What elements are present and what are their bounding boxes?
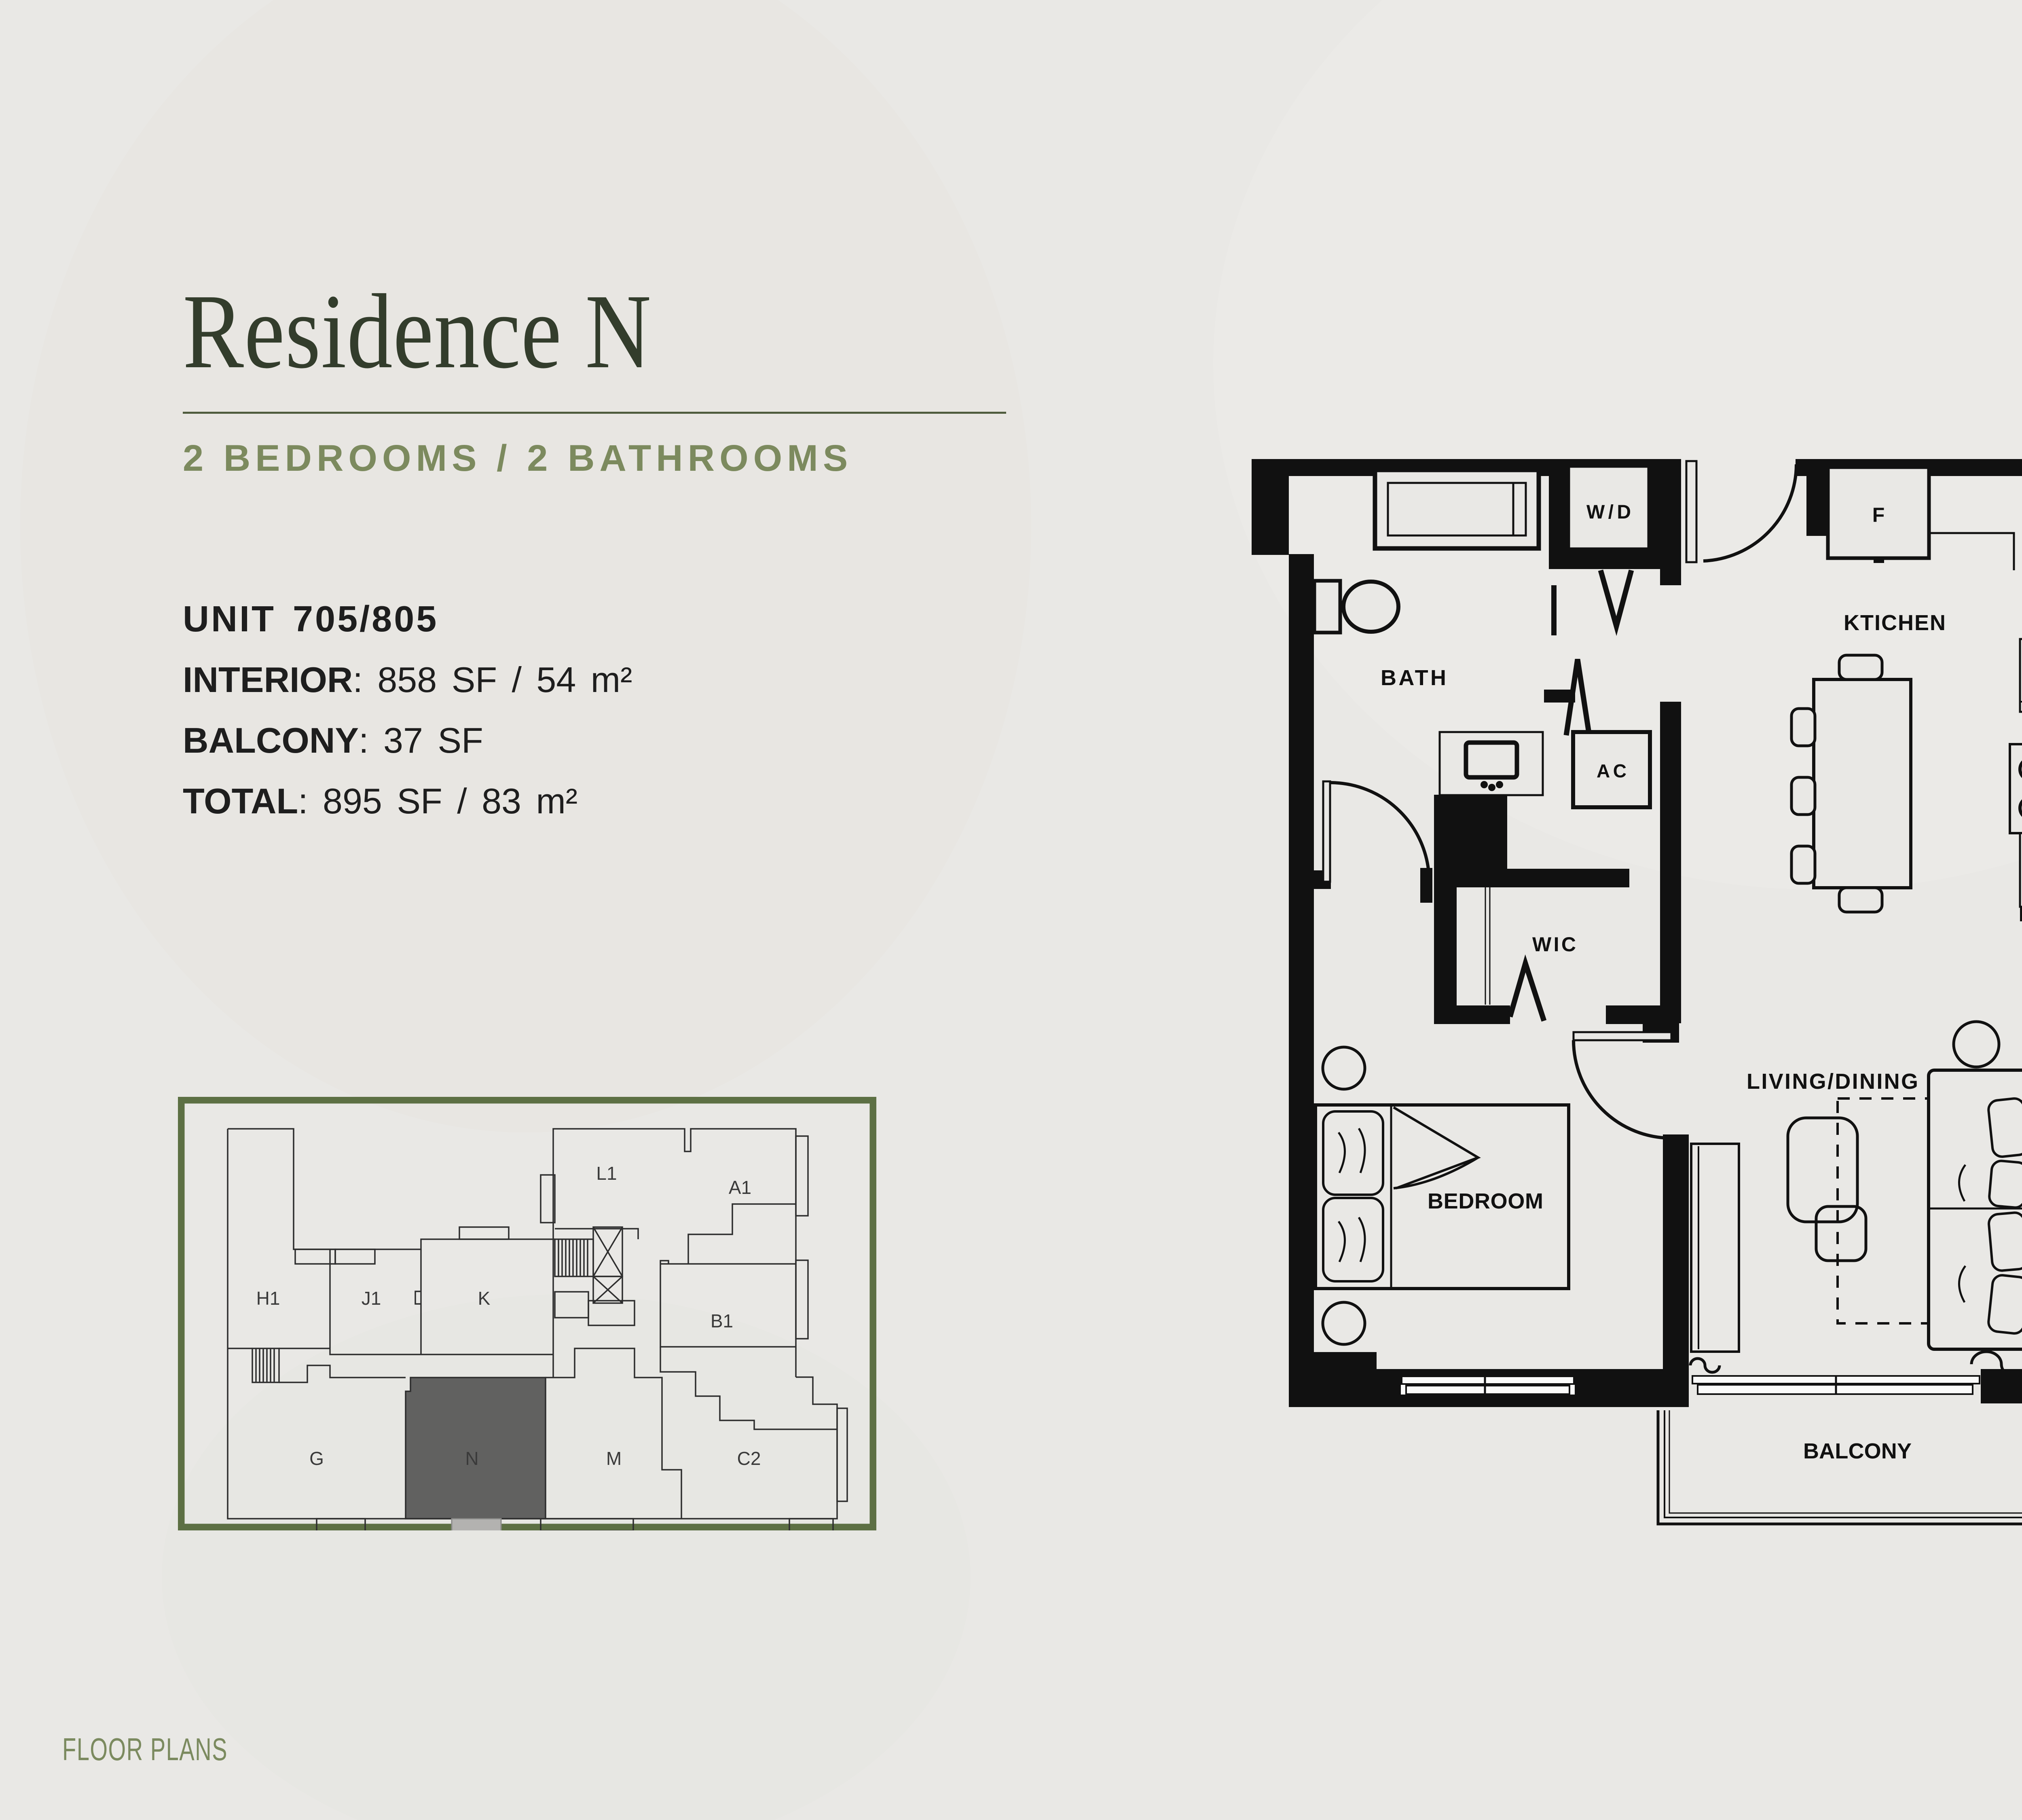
svg-text:BATH: BATH: [1381, 666, 1446, 690]
svg-text:K: K: [478, 1288, 491, 1309]
svg-text:L1: L1: [596, 1163, 617, 1184]
svg-text:BEDROOM: BEDROOM: [1428, 1189, 1543, 1213]
svg-text:KTICHEN: KTICHEN: [1844, 611, 1946, 635]
svg-text:B1: B1: [711, 1310, 733, 1331]
svg-text:G: G: [309, 1448, 324, 1469]
svg-text:LIVING/DINING: LIVING/DINING: [1747, 1069, 1918, 1094]
svg-text:BALCONY: BALCONY: [1803, 1439, 1912, 1463]
svg-text:H1: H1: [256, 1288, 280, 1309]
svg-text:M: M: [606, 1448, 622, 1469]
svg-text:F: F: [1872, 504, 1885, 526]
svg-text:A1: A1: [729, 1177, 751, 1198]
svg-text:N: N: [465, 1448, 478, 1469]
svg-text:J1: J1: [362, 1288, 381, 1309]
svg-text:WIC: WIC: [1532, 933, 1576, 956]
svg-text:W/D: W/D: [1586, 502, 1631, 523]
svg-text:C2: C2: [737, 1448, 761, 1469]
